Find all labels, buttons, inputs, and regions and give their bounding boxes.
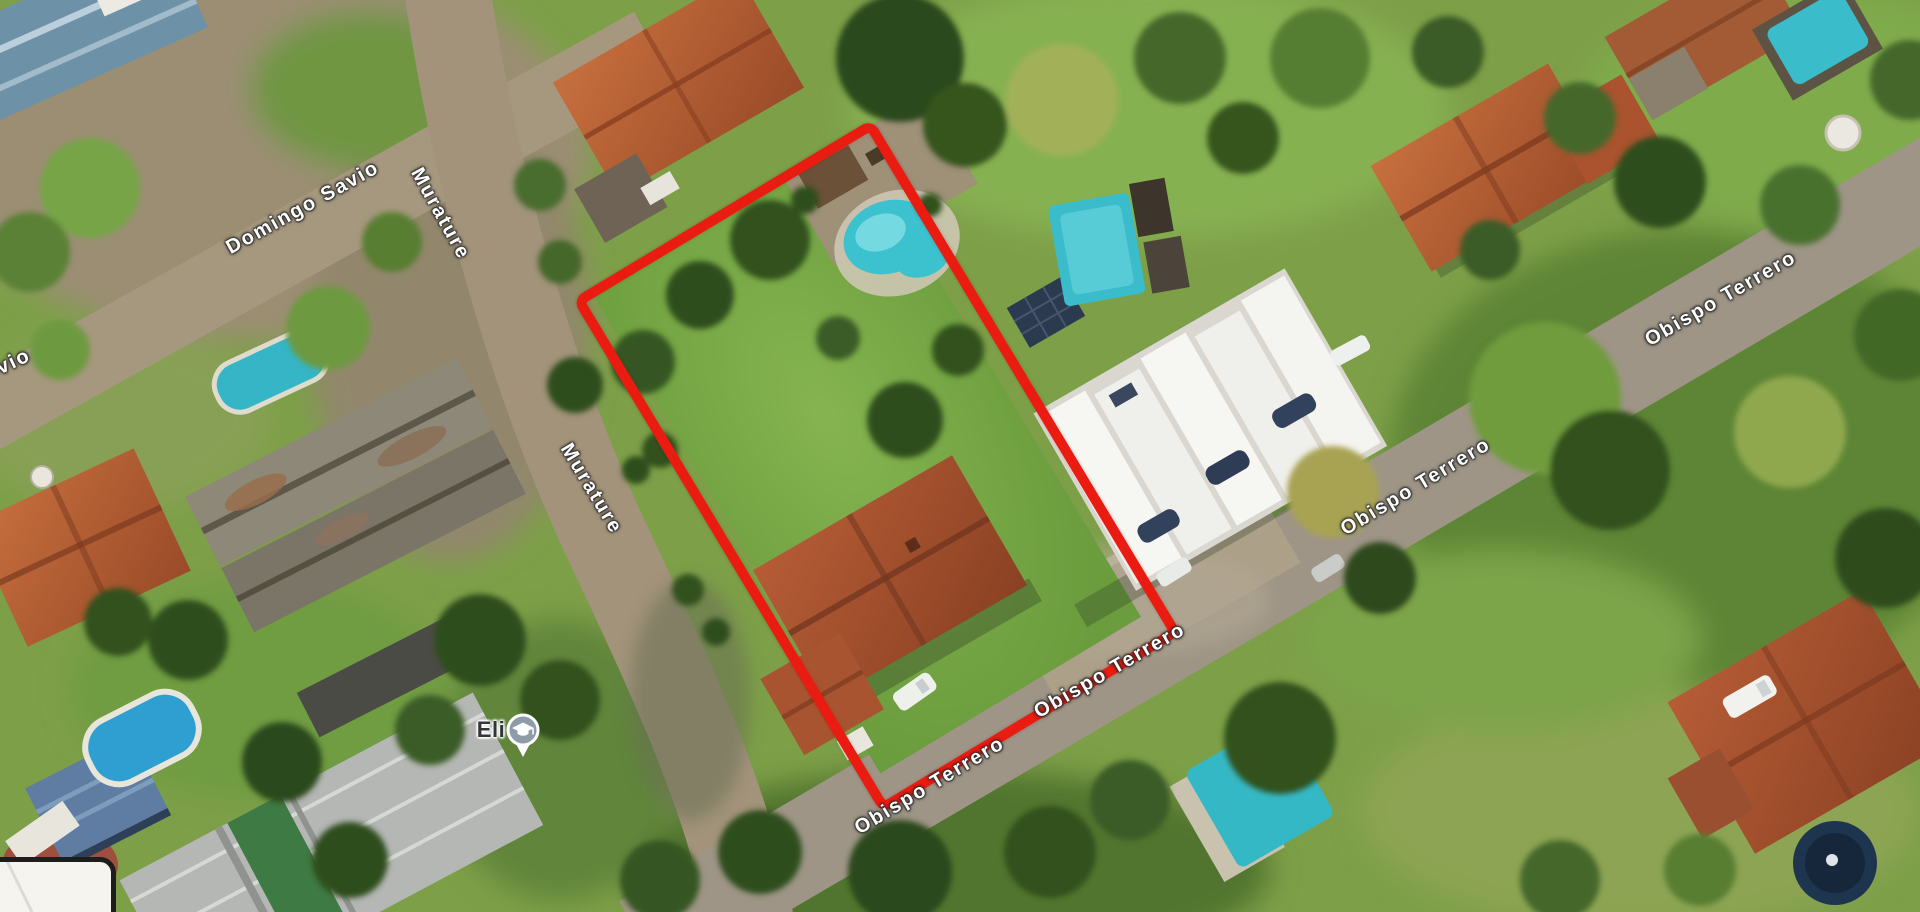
poi-eli-label: Eli (477, 717, 505, 743)
poi-eli[interactable]: Eli (460, 700, 550, 758)
school-pin-icon (504, 713, 542, 759)
satellite-map-view[interactable]: Domingo Savio vio Murature Murature Obis… (0, 0, 1920, 912)
inset-thumbnail[interactable] (0, 857, 116, 912)
